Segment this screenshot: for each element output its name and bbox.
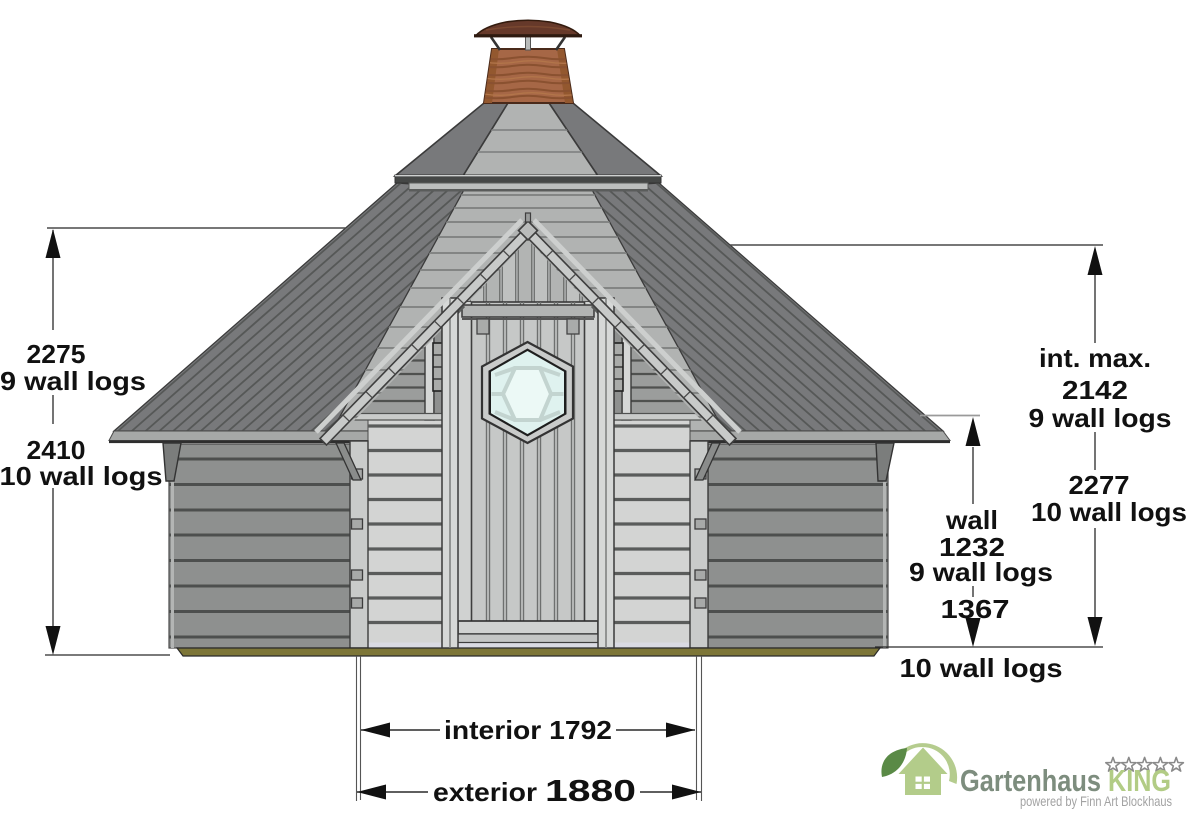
svg-text:2142: 2142 (1062, 375, 1128, 405)
svg-text:interior 1792: interior 1792 (444, 715, 612, 745)
svg-text:int. max.: int. max. (1039, 343, 1151, 373)
svg-text:9 wall logs: 9 wall logs (1029, 403, 1172, 433)
svg-text:wall: wall (945, 505, 998, 535)
svg-text:2277: 2277 (1069, 470, 1130, 500)
svg-text:2275: 2275 (27, 339, 86, 369)
svg-text:9 wall logs: 9 wall logs (909, 557, 1053, 587)
svg-text:powered by Finn Art Blockhaus: powered by Finn Art Blockhaus (1020, 793, 1172, 809)
svg-text:9 wall logs: 9 wall logs (0, 366, 146, 396)
svg-text:10 wall logs: 10 wall logs (1031, 497, 1187, 527)
svg-text:1367: 1367 (941, 594, 1010, 624)
svg-text:exterior1880: exterior1880 (433, 773, 636, 808)
svg-text:10 wall logs: 10 wall logs (900, 653, 1063, 683)
svg-text:10 wall logs: 10 wall logs (0, 461, 163, 491)
